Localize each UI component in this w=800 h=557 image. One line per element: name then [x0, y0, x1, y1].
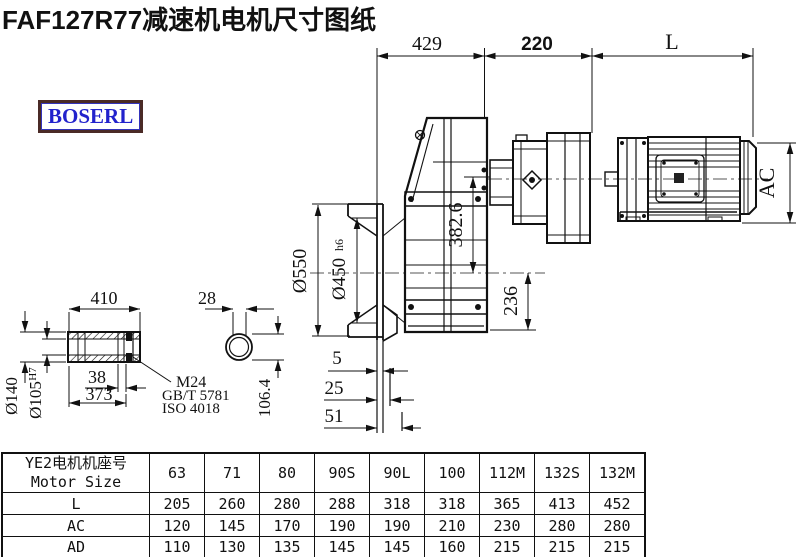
- dim-429-label: 429: [412, 33, 442, 55]
- cell-L-80: 280: [260, 493, 315, 515]
- cell-L-90S: 288: [315, 493, 370, 515]
- dim-450-tolerance: h6: [332, 239, 346, 251]
- dim-220-label: 220: [521, 34, 553, 55]
- bell-housing: [490, 133, 618, 243]
- col-112M: 112M: [480, 453, 535, 493]
- dim-550-label: Ø550: [289, 249, 311, 293]
- row-label-AD: AD: [2, 537, 150, 557]
- header-en: Motor Size: [3, 473, 149, 492]
- cell-AD-63: 110: [150, 537, 205, 557]
- table-header-motor-size: YE2电机机座号 Motor Size: [2, 453, 150, 493]
- motor-size-table: YE2电机机座号 Motor Size 63 71 80 90S 90L 100…: [1, 452, 646, 557]
- cell-L-132S: 413: [535, 493, 590, 515]
- dimension-labels: 429 220 L AC Ø550 Ø450 h6 382.6 236 5 25…: [2, 29, 779, 427]
- standard-iso-callout: ISO 4018: [162, 401, 220, 417]
- col-63: 63: [150, 453, 205, 493]
- col-132M: 132M: [590, 453, 646, 493]
- cell-AC-100: 210: [425, 515, 480, 537]
- dim-140-label: Ø140: [2, 377, 21, 415]
- col-100: 100: [425, 453, 480, 493]
- dim-236-label: 236: [500, 286, 522, 316]
- cell-L-132M: 452: [590, 493, 646, 515]
- row-label-L: L: [2, 493, 150, 515]
- col-90L: 90L: [370, 453, 425, 493]
- drawing-sheet: FAF127R77减速机电机尺寸图纸 BOSERL: [0, 0, 800, 557]
- col-132S: 132S: [535, 453, 590, 493]
- cell-AC-71: 145: [205, 515, 260, 537]
- cell-AC-132M: 280: [590, 515, 646, 537]
- cell-AC-63: 120: [150, 515, 205, 537]
- cell-AC-112M: 230: [480, 515, 535, 537]
- cell-AD-112M: 215: [480, 537, 535, 557]
- dim-373-label: 373: [86, 384, 113, 404]
- cell-L-100: 318: [425, 493, 480, 515]
- cell-AD-132M: 215: [590, 537, 646, 557]
- cell-AD-71: 130: [205, 537, 260, 557]
- cell-L-63: 205: [150, 493, 205, 515]
- cell-L-112M: 365: [480, 493, 535, 515]
- shaft-detail: [68, 332, 252, 362]
- header-cn: YE2电机机座号: [3, 454, 149, 473]
- cell-L-90L: 318: [370, 493, 425, 515]
- col-80: 80: [260, 453, 315, 493]
- cell-AC-80: 170: [260, 515, 315, 537]
- cell-AC-90S: 190: [315, 515, 370, 537]
- dim-450-label: Ø450: [329, 258, 350, 300]
- dimension-lines: [20, 48, 796, 428]
- cell-L-71: 260: [205, 493, 260, 515]
- table-row-AD: AD 110 130 135 145 145 160 215 215 215: [2, 537, 645, 557]
- table-header-row: YE2电机机座号 Motor Size 63 71 80 90S 90L 100…: [2, 453, 645, 493]
- cell-AD-132S: 215: [535, 537, 590, 557]
- dim-106-label: 106.4: [255, 378, 274, 417]
- cell-AD-80: 135: [260, 537, 315, 557]
- cell-AC-90L: 190: [370, 515, 425, 537]
- dim-382-label: 382.6: [445, 203, 467, 248]
- cell-AC-132S: 280: [535, 515, 590, 537]
- dim-28-label: 28: [198, 288, 216, 308]
- dim-AC-label: AC: [754, 168, 779, 199]
- dim-105-tolerance: H7: [27, 367, 39, 381]
- dim-51-label: 51: [325, 406, 344, 427]
- table-row-L: L 205 260 280 288 318 318 365 413 452: [2, 493, 645, 515]
- cell-AD-90S: 145: [315, 537, 370, 557]
- dim-5-label: 5: [332, 348, 342, 369]
- col-90S: 90S: [315, 453, 370, 493]
- dim-105-label: Ø105: [26, 381, 45, 419]
- table-row-AC: AC 120 145 170 190 190 210 230 280 280: [2, 515, 645, 537]
- dim-410-label: 410: [91, 288, 118, 308]
- row-label-AC: AC: [2, 515, 150, 537]
- dim-25-label: 25: [325, 378, 344, 399]
- cell-AD-90L: 145: [370, 537, 425, 557]
- cell-AD-100: 160: [425, 537, 480, 557]
- col-71: 71: [205, 453, 260, 493]
- dim-L-label: L: [665, 29, 678, 54]
